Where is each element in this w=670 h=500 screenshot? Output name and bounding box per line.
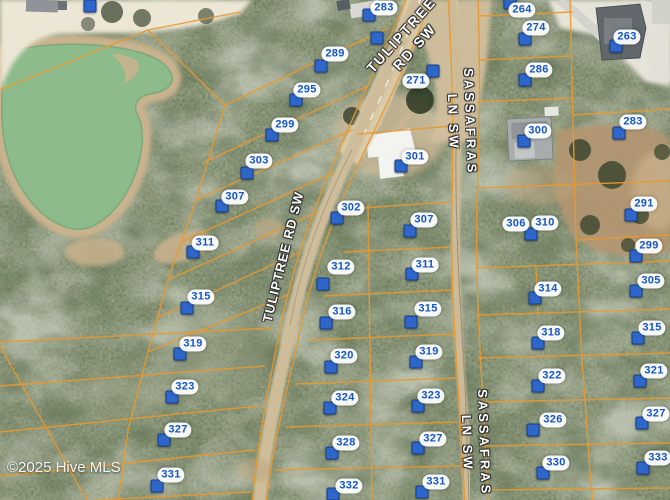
parcel-label[interactable]: 291	[630, 197, 657, 212]
parcel-label[interactable]: 302	[337, 201, 364, 216]
parcel-label[interactable]: 327	[419, 432, 446, 447]
parcel-label[interactable]: 327	[642, 407, 669, 422]
parcel-pin[interactable]	[84, 0, 97, 13]
satellite-map-canvas	[0, 0, 670, 500]
parcel-pin[interactable]	[405, 316, 418, 329]
parcel-label[interactable]: 310	[531, 216, 558, 231]
parcel-label[interactable]: 264	[508, 3, 535, 18]
parcel-label[interactable]: 323	[171, 380, 198, 395]
parcel-label[interactable]: 315	[414, 302, 441, 317]
parcel-label[interactable]: 322	[538, 369, 565, 384]
road-label-sassafras-top: SASSAFRASLN SW	[442, 68, 480, 176]
parcel-label[interactable]: 332	[335, 479, 362, 494]
parcel-pin[interactable]	[320, 317, 333, 330]
satellite-parcel-map[interactable]: ©2025 Hive MLS 2832892952993033073113153…	[0, 0, 670, 500]
parcel-label[interactable]: 319	[415, 345, 442, 360]
parcel-pin[interactable]	[427, 65, 440, 78]
parcel-label[interactable]: 307	[221, 190, 248, 205]
parcel-label[interactable]: 306	[502, 217, 529, 232]
parcel-pin[interactable]	[527, 424, 540, 437]
parcel-label[interactable]: 331	[157, 468, 184, 483]
parcel-label[interactable]: 311	[192, 236, 219, 251]
parcel-label[interactable]: 320	[330, 349, 357, 364]
parcel-label[interactable]: 283	[619, 115, 646, 130]
parcel-label[interactable]: 289	[321, 47, 348, 62]
parcel-label[interactable]: 286	[525, 63, 552, 78]
parcel-label[interactable]: 295	[293, 83, 320, 98]
parcel-label[interactable]: 327	[164, 423, 191, 438]
parcel-label[interactable]: 315	[638, 321, 665, 336]
parcel-label[interactable]: 305	[637, 274, 664, 289]
parcel-label[interactable]: 316	[328, 305, 355, 320]
parcel-label[interactable]: 307	[410, 213, 437, 228]
parcel-label[interactable]: 330	[542, 456, 569, 471]
parcel-label[interactable]: 312	[327, 260, 354, 275]
parcel-label[interactable]: 303	[245, 154, 272, 169]
parcel-label[interactable]: 311	[412, 258, 439, 273]
parcel-label[interactable]: 263	[613, 30, 640, 45]
parcel-pin[interactable]	[315, 60, 328, 73]
parcel-pin[interactable]	[371, 32, 384, 45]
parcel-label[interactable]: 283	[370, 1, 397, 16]
parcel-label[interactable]: 331	[422, 475, 449, 490]
parcel-label[interactable]: 333	[644, 451, 670, 466]
parcel-label[interactable]: 274	[522, 21, 549, 36]
parcel-label[interactable]: 326	[539, 413, 566, 428]
parcel-label[interactable]: 299	[635, 239, 662, 254]
parcel-label[interactable]: 315	[187, 290, 214, 305]
parcel-pin[interactable]	[317, 278, 330, 291]
parcel-label[interactable]: 318	[537, 326, 564, 341]
parcel-label[interactable]: 271	[402, 74, 429, 89]
parcel-label[interactable]: 328	[332, 436, 359, 451]
parcel-label[interactable]: 319	[179, 337, 206, 352]
parcel-label[interactable]: 314	[534, 282, 561, 297]
watermark: ©2025 Hive MLS	[7, 459, 121, 476]
parcel-label[interactable]: 301	[401, 150, 428, 165]
parcel-label[interactable]: 324	[331, 391, 358, 406]
parcel-label[interactable]: 323	[417, 389, 444, 404]
road-label-sassafras-bottom: SASSAFRASLN SW	[456, 389, 494, 497]
parcel-label[interactable]: 299	[271, 118, 298, 133]
parcel-label[interactable]: 300	[524, 124, 551, 139]
parcel-label[interactable]: 321	[640, 364, 667, 379]
